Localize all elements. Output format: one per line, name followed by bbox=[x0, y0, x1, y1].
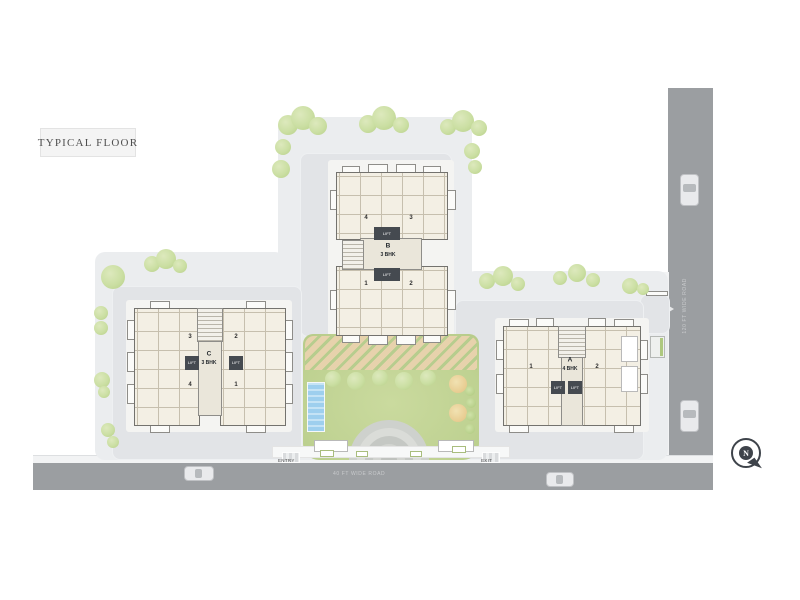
tree-icon bbox=[101, 265, 125, 289]
building-label: A bbox=[568, 357, 573, 364]
unit-number: 1 bbox=[364, 281, 367, 287]
page-title: TYPICAL FLOOR bbox=[40, 128, 136, 157]
tree-icon bbox=[107, 436, 119, 448]
unit-number: 2 bbox=[409, 281, 412, 287]
building-label: 4 BHK bbox=[562, 366, 577, 372]
water-feature bbox=[307, 382, 325, 432]
shrub-icon bbox=[465, 386, 475, 396]
compass-tail-icon bbox=[747, 458, 762, 474]
entry-label: ENTRY bbox=[278, 458, 295, 463]
planter bbox=[320, 450, 334, 457]
lift-box: LIFT bbox=[374, 268, 400, 281]
car-icon bbox=[680, 400, 699, 432]
security-cabin bbox=[650, 336, 665, 358]
floor-plan-canvas: 120 FT WIDE ROAD 40 FT WIDE ROAD ENTRY E… bbox=[0, 0, 800, 600]
tree-icon bbox=[622, 278, 638, 294]
staircase bbox=[197, 308, 223, 342]
tree-icon bbox=[471, 120, 487, 136]
lift-label: LIFT bbox=[554, 386, 562, 390]
tree-icon bbox=[372, 370, 388, 386]
staircase bbox=[342, 240, 364, 270]
lift-label: LIFT bbox=[232, 361, 240, 365]
tree-icon bbox=[637, 283, 649, 295]
tree-icon bbox=[98, 386, 110, 398]
planter bbox=[621, 366, 638, 392]
lift-box: LIFT bbox=[229, 356, 243, 370]
unit-number: 3 bbox=[409, 215, 412, 221]
planter bbox=[356, 451, 368, 457]
unit-number: 2 bbox=[595, 364, 598, 370]
road-label-bottom: 40 FT WIDE ROAD bbox=[333, 471, 385, 477]
tree-icon bbox=[464, 143, 480, 159]
lift-box: LIFT bbox=[185, 356, 199, 370]
tree-icon bbox=[275, 139, 291, 155]
lift-label: LIFT bbox=[383, 273, 391, 277]
shrub-icon bbox=[466, 411, 476, 421]
planter bbox=[621, 336, 638, 362]
tree-icon bbox=[420, 370, 436, 386]
car-icon bbox=[546, 472, 574, 487]
tree-icon bbox=[94, 321, 108, 335]
tree-icon bbox=[325, 371, 341, 387]
tree-icon bbox=[511, 277, 525, 291]
lift-box: LIFT bbox=[374, 227, 400, 240]
unit-number: 3 bbox=[188, 334, 191, 340]
building-wing bbox=[503, 326, 563, 426]
lift-label: LIFT bbox=[383, 232, 391, 236]
building-label: B bbox=[386, 243, 391, 250]
planter bbox=[410, 451, 422, 457]
tree-icon bbox=[395, 372, 413, 390]
compass-north-label: N bbox=[739, 446, 753, 460]
building-label: 3 BHK bbox=[201, 360, 216, 366]
unit-number: 2 bbox=[234, 334, 237, 340]
shrub-icon bbox=[466, 398, 476, 408]
balcony bbox=[368, 335, 388, 345]
unit-number: 4 bbox=[364, 215, 367, 221]
staircase bbox=[558, 326, 586, 358]
planter bbox=[452, 446, 466, 453]
tree-icon bbox=[586, 273, 600, 287]
entrance-plaza bbox=[272, 446, 510, 458]
lift-box: LIFT bbox=[551, 381, 565, 394]
tree-icon bbox=[393, 117, 409, 133]
tree-icon bbox=[272, 160, 290, 178]
road-label-right: 120 FT WIDE ROAD bbox=[682, 278, 688, 334]
tree-icon bbox=[173, 259, 187, 273]
exit-label: EXIT bbox=[481, 458, 492, 463]
balcony bbox=[396, 335, 416, 345]
tree-icon bbox=[553, 271, 567, 285]
tree-icon bbox=[347, 372, 365, 390]
road-bottom: 40 FT WIDE ROAD bbox=[33, 462, 713, 490]
tree-icon bbox=[449, 404, 467, 422]
tree-icon bbox=[94, 306, 108, 320]
entry-gate bbox=[646, 291, 668, 296]
tree-icon bbox=[101, 423, 115, 437]
lift-label: LIFT bbox=[571, 386, 579, 390]
building-label: C bbox=[207, 351, 212, 358]
unit-number: 1 bbox=[529, 364, 532, 370]
unit-number: 1 bbox=[234, 382, 237, 388]
tree-icon bbox=[568, 264, 586, 282]
building-label: 3 BHK bbox=[380, 252, 395, 258]
shrub-icon bbox=[465, 424, 475, 434]
car-icon bbox=[680, 174, 699, 206]
lift-label: LIFT bbox=[188, 361, 196, 365]
tree-icon bbox=[309, 117, 327, 135]
unit-number: 4 bbox=[188, 382, 191, 388]
lift-box: LIFT bbox=[568, 381, 582, 394]
car-icon bbox=[184, 466, 214, 481]
tree-icon bbox=[468, 160, 482, 174]
tree-icon bbox=[493, 266, 513, 286]
pergola bbox=[305, 336, 477, 370]
